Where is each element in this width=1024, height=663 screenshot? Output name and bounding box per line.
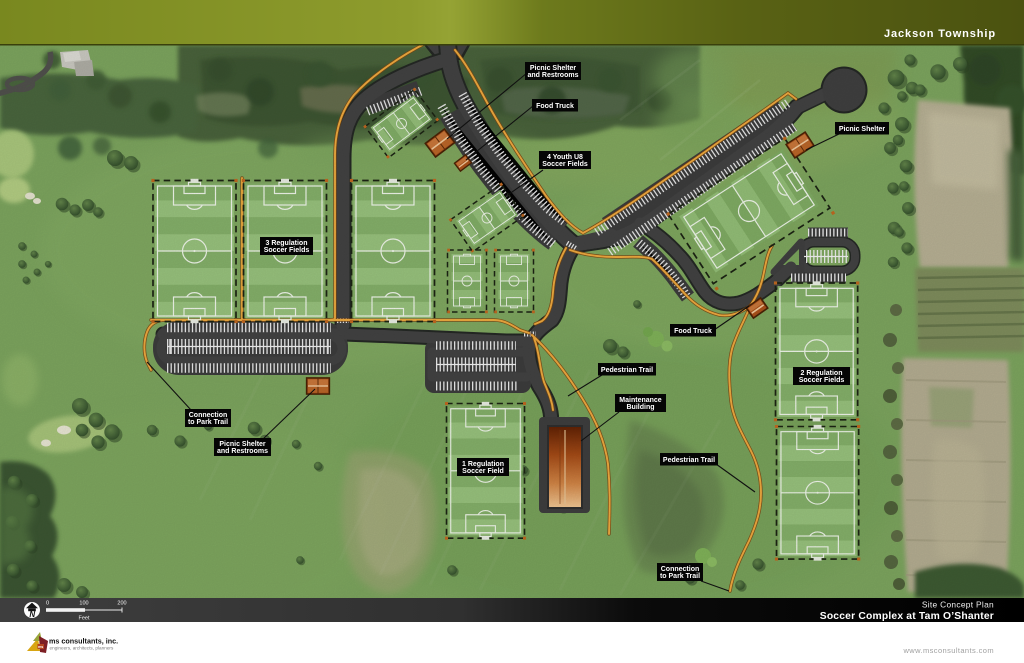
svg-text:200: 200 [117, 601, 126, 607]
svg-text:ms consultants, inc.: ms consultants, inc. [49, 637, 118, 646]
svg-text:Site Concept Plan: Site Concept Plan [922, 600, 994, 610]
svg-text:to Park Trail: to Park Trail [188, 419, 228, 426]
svg-text:0: 0 [46, 601, 49, 607]
svg-text:Connection: Connection [189, 412, 228, 419]
svg-text:ms: ms [38, 645, 43, 649]
svg-text:100: 100 [79, 601, 88, 607]
svg-text:to Park Trail: to Park Trail [660, 573, 700, 580]
svg-text:Pedestrian Trail: Pedestrian Trail [663, 457, 715, 464]
svg-text:Picnic Shelter: Picnic Shelter [530, 65, 577, 72]
svg-text:4 Youth U8: 4 Youth U8 [547, 154, 583, 161]
svg-text:Soccer Fields: Soccer Fields [799, 377, 845, 384]
svg-text:Pedestrian Trail: Pedestrian Trail [601, 367, 653, 374]
svg-text:Maintenance: Maintenance [619, 397, 662, 404]
svg-text:engineers, architects, planner: engineers, architects, planners [50, 646, 114, 651]
svg-text:Food Truck: Food Truck [536, 103, 574, 110]
svg-text:and Restrooms: and Restrooms [217, 448, 268, 455]
svg-text:Picnic Shelter: Picnic Shelter [839, 126, 886, 133]
svg-text:Soccer Field: Soccer Field [462, 468, 504, 475]
svg-text:2 Regulation: 2 Regulation [800, 370, 842, 377]
svg-text:www.msconsultants.com: www.msconsultants.com [902, 646, 994, 655]
svg-text:and Restrooms: and Restrooms [528, 72, 579, 79]
svg-text:N: N [29, 610, 35, 619]
svg-text:Building: Building [627, 404, 655, 411]
svg-text:Connection: Connection [661, 566, 700, 573]
svg-text:3 Regulation: 3 Regulation [265, 240, 307, 247]
svg-text:Soccer Complex at Tam O’Shante: Soccer Complex at Tam O’Shanter [820, 611, 994, 622]
svg-text:Soccer Fields: Soccer Fields [264, 247, 310, 254]
svg-text:Picnic Shelter: Picnic Shelter [219, 441, 266, 448]
svg-text:1 Regulation: 1 Regulation [462, 461, 504, 468]
svg-text:Food Truck: Food Truck [674, 328, 712, 335]
svg-text:Jackson Township: Jackson Township [884, 28, 996, 40]
svg-text:Soccer Fields: Soccer Fields [542, 161, 588, 168]
svg-text:Feet: Feet [78, 616, 89, 622]
